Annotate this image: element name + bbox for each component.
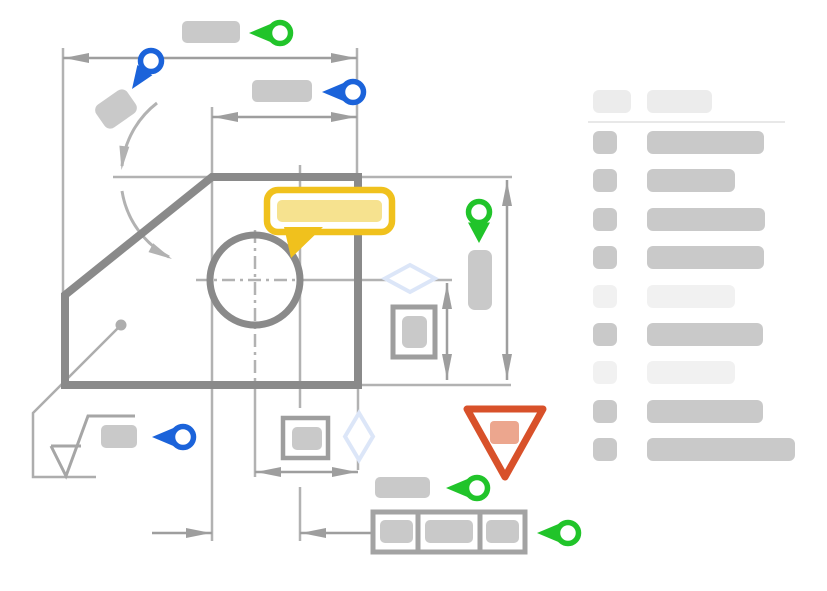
row-icon-chip (593, 169, 617, 192)
header-icon-chip (593, 90, 631, 113)
pin-circle (558, 523, 579, 544)
list-item[interactable] (588, 246, 798, 269)
dim-text-inner-top (252, 80, 312, 102)
sidebar-rows (588, 131, 798, 461)
pin-green-down-right[interactable] (468, 202, 490, 244)
warning-triangle[interactable] (467, 409, 543, 477)
list-divider (588, 121, 785, 123)
header-text-chip (647, 90, 712, 113)
angle-text-placeholder (92, 87, 139, 132)
dim-text-top (182, 21, 240, 43)
leader-dot (116, 320, 127, 331)
row-text-chip (647, 438, 795, 461)
list-header (588, 90, 818, 113)
list-item[interactable] (588, 285, 798, 308)
row-icon-chip (593, 285, 617, 308)
pin-circle (469, 202, 490, 223)
pin-circle (467, 478, 488, 499)
row-text-chip (647, 169, 735, 192)
row-text-chip (647, 285, 735, 308)
symbol-placeholder (402, 316, 427, 348)
pin-green-left-top[interactable] (249, 23, 291, 44)
list-item[interactable] (588, 131, 798, 154)
row-icon-chip (593, 361, 617, 384)
vertical-dim-text-placeholder (468, 250, 492, 310)
list-item[interactable] (588, 438, 798, 461)
list-item[interactable] (588, 208, 798, 231)
symbol-placeholder (292, 427, 322, 450)
row-text-chip (647, 400, 763, 423)
pin-blue-left-bottom[interactable] (152, 427, 194, 448)
pin-circle (343, 82, 364, 103)
boxed-symbol-bottom (283, 418, 328, 458)
list-item[interactable] (588, 323, 798, 346)
comment-text-placeholder (277, 200, 382, 222)
row-text-chip (647, 208, 765, 231)
drawing-review-canvas (0, 0, 827, 591)
row-text-chip (647, 323, 763, 346)
pin-circle (270, 23, 291, 44)
feature-control-frame (373, 512, 525, 552)
annotation-list-panel (588, 88, 818, 468)
frame-cell-placeholder-1 (380, 520, 413, 543)
pin-circle (141, 51, 162, 72)
row-icon-chip (593, 323, 617, 346)
frame-cell-placeholder-2 (425, 520, 473, 543)
boxed-symbol-right (393, 307, 435, 357)
row-text-chip (647, 361, 735, 384)
pin-blue-left-upper[interactable] (322, 82, 364, 103)
arc-arrowhead-upper (119, 146, 129, 170)
row-icon-chip (593, 438, 617, 461)
list-item[interactable] (588, 361, 798, 384)
dim-text-surface (101, 425, 137, 448)
row-text-chip (647, 131, 764, 154)
row-icon-chip (593, 131, 617, 154)
diamond-marker-bottom (345, 413, 373, 460)
pin-blue-rotated-top-left[interactable] (132, 51, 162, 90)
warning-text-placeholder (490, 421, 519, 444)
diamond-marker-right (385, 265, 435, 292)
row-icon-chip (593, 208, 617, 231)
list-item[interactable] (588, 400, 798, 423)
pin-green-left-bottom[interactable] (446, 478, 488, 499)
row-icon-chip (593, 246, 617, 269)
dim-text-bottom (375, 477, 430, 498)
list-item[interactable] (588, 169, 798, 192)
row-icon-chip (593, 400, 617, 423)
row-text-chip (647, 246, 764, 269)
pin-circle (173, 427, 194, 448)
frame-cell-placeholder-3 (486, 520, 519, 543)
pin-green-left-frame[interactable] (537, 523, 579, 544)
